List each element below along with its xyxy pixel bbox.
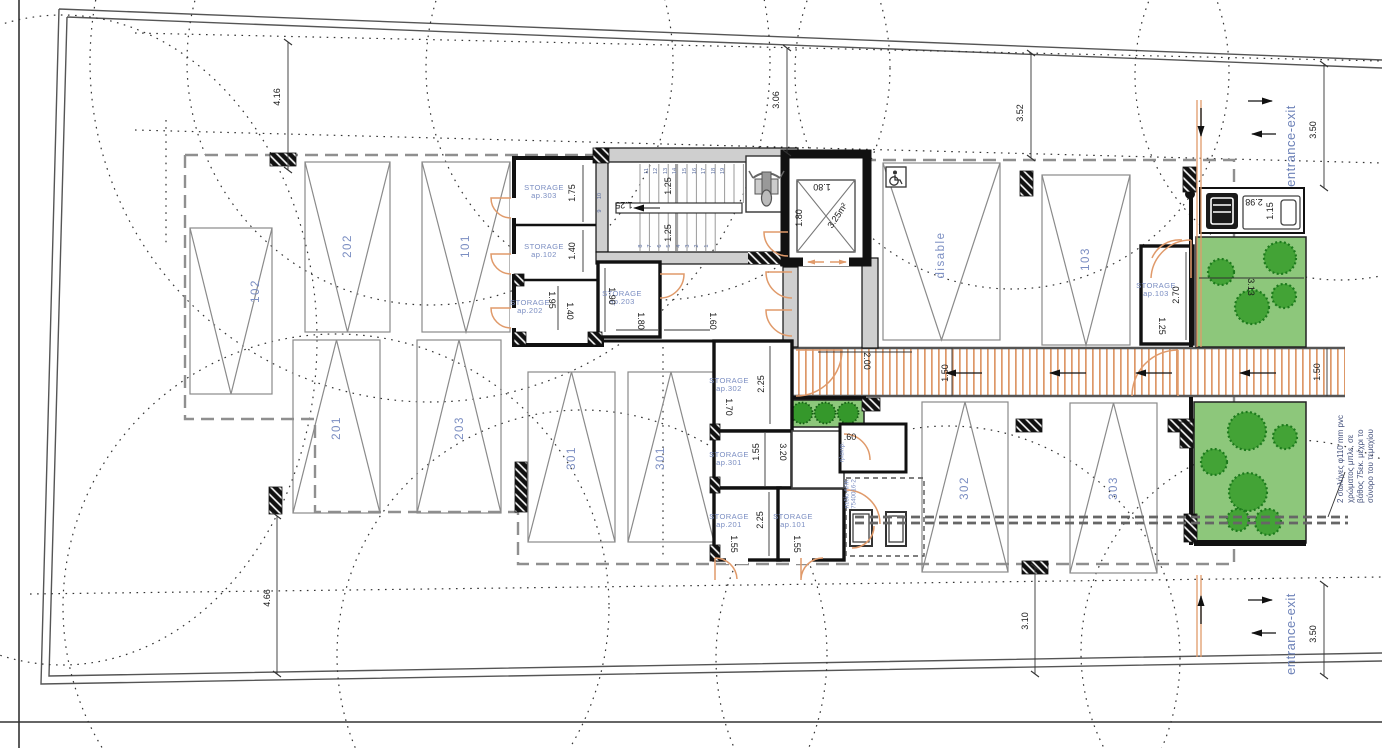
note-leader <box>1328 472 1345 517</box>
wheelchair-icon <box>886 167 906 187</box>
bush-icons <box>792 403 859 424</box>
plan-drawing <box>0 0 1382 748</box>
garbage-area <box>1185 172 1304 233</box>
floor-plan: 102202101201203301301302303103disableSTO… <box>0 0 1382 748</box>
stair-rail <box>616 203 742 213</box>
